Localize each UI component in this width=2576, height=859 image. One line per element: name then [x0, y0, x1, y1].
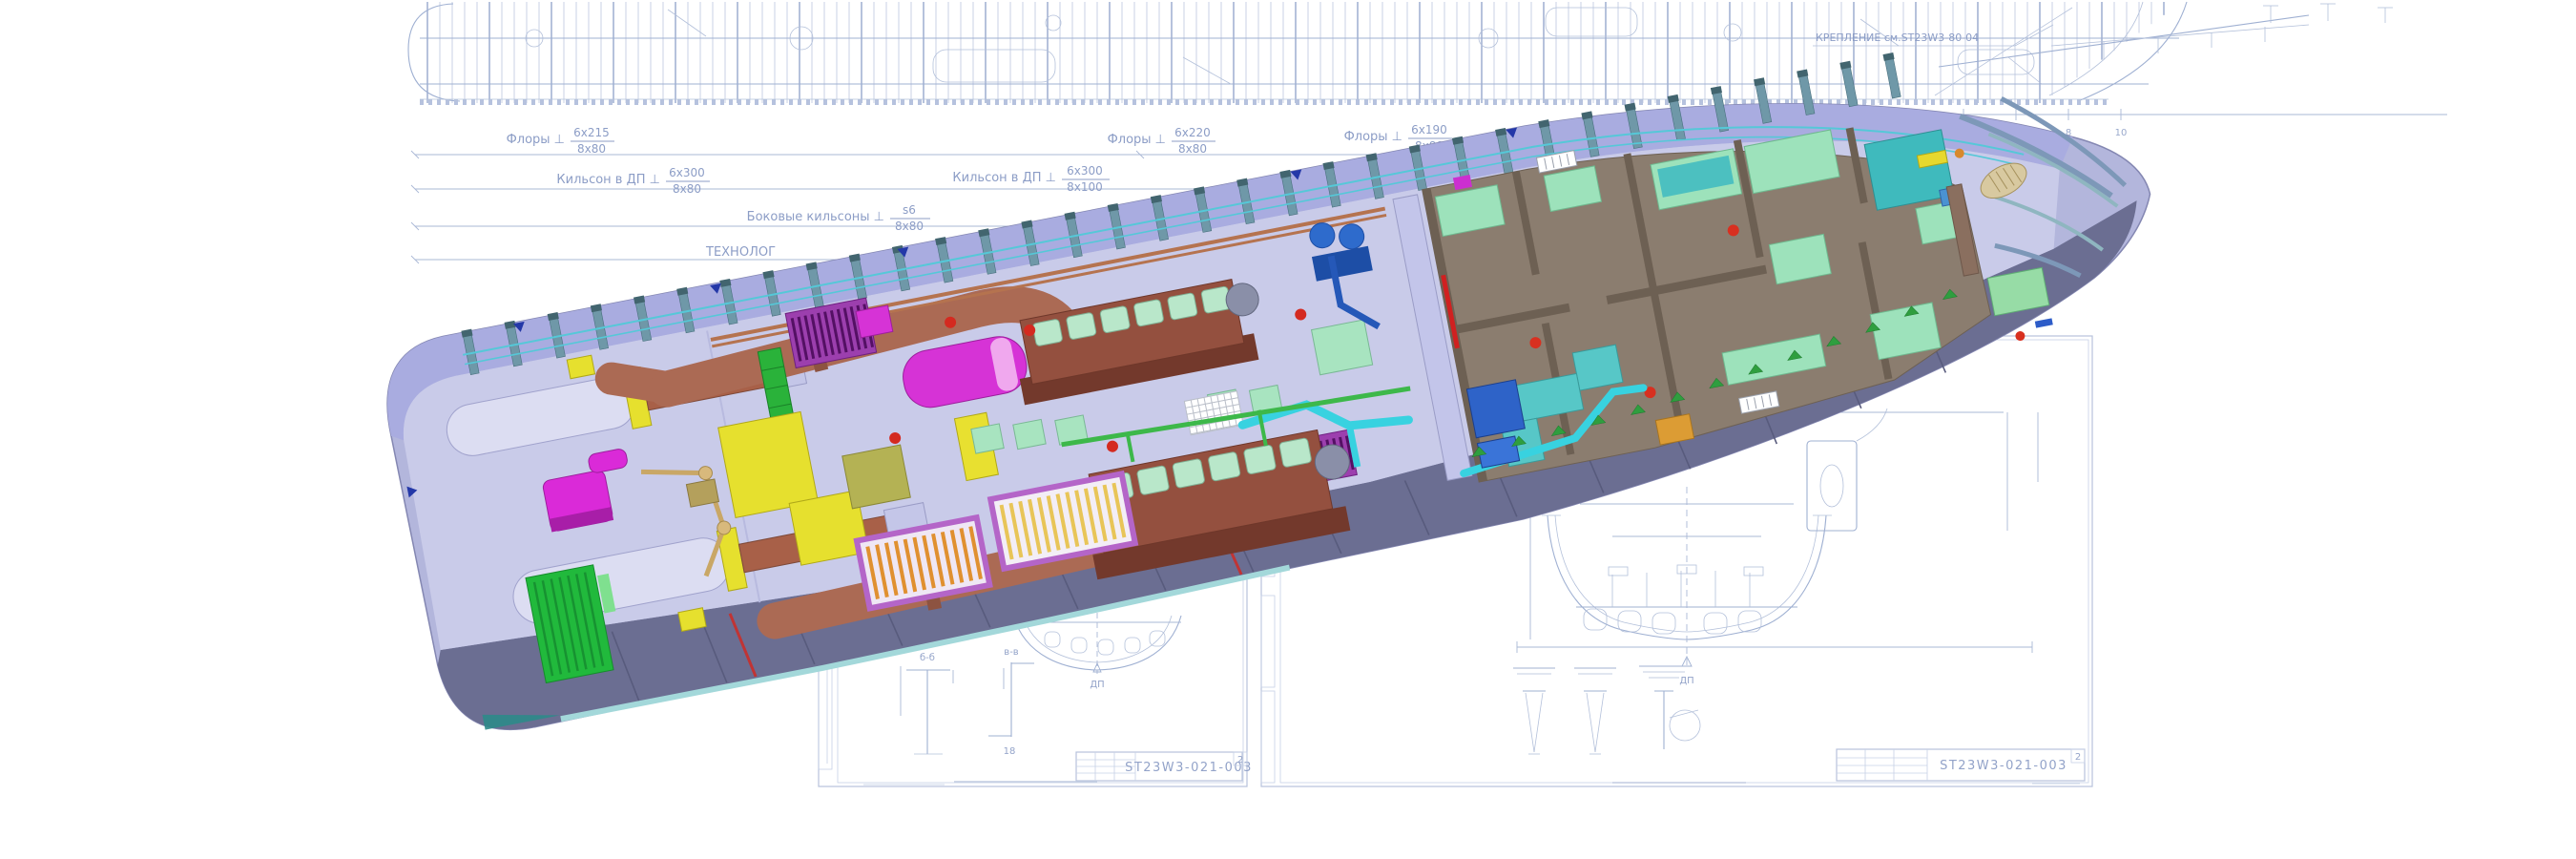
title-block-right: ST23W3-021-003 2 — [1612, 749, 2085, 784]
label-floors-1-lower: 8x80 — [577, 142, 606, 156]
beam-detail-b: в-в 18 — [988, 647, 1034, 757]
deck-plan-bow-curve — [2078, 2, 2187, 101]
label-keelson-1: Кильсон в ДП ⊥ 6x300 8x80 — [556, 166, 710, 196]
svg-text:б-б: б-б — [920, 653, 935, 663]
label-partial-technolog: ТЕХНОЛОГ — [705, 245, 776, 260]
svg-text:6x220: 6x220 — [1174, 126, 1211, 139]
svg-text:ДП: ДП — [1679, 676, 1693, 686]
svg-text:Боковые кильсоны ⊥: Боковые кильсоны ⊥ — [747, 210, 884, 224]
label-side-keelsons: Боковые кильсоны ⊥ s6 8x80 — [747, 203, 930, 233]
svg-text:Флоры ⊥: Флоры ⊥ — [1108, 133, 1166, 147]
scene: Флоры ⊥ 6x215 8x80 Флоры ⊥ 6x220 8x80 Фл… — [0, 0, 2576, 859]
fastening-note: КРЕПЛЕНИЕ см.ST23W3-80-04 — [1816, 31, 1979, 44]
doc-code-right: ST23W3-021-003 — [1940, 759, 2067, 773]
svg-text:2: 2 — [1237, 755, 1243, 765]
label-floors-2: Флоры ⊥ 6x220 8x80 — [1108, 126, 1215, 156]
tank-khaki — [842, 445, 911, 509]
svg-text:18: 18 — [1004, 746, 1016, 757]
svg-text:2: 2 — [2075, 752, 2081, 763]
svg-text:6x300: 6x300 — [669, 166, 705, 179]
ship-3d-model — [374, 10, 2191, 744]
title-block-middle: ST23W3-021-003 2 — [863, 752, 1253, 785]
svg-text:6x190: 6x190 — [1411, 123, 1447, 136]
label-floors-1-upper: 6x215 — [573, 126, 610, 139]
label-floors-1: Флоры ⊥ 6x215 8x80 — [507, 126, 614, 156]
svg-text:8x80: 8x80 — [895, 220, 924, 233]
svg-text:10: 10 — [2115, 128, 2128, 138]
svg-text:8x80: 8x80 — [673, 182, 701, 196]
blue-cabinet — [1466, 380, 1525, 438]
beam-detail-a: б-б — [901, 653, 953, 754]
svg-text:Флоры ⊥: Флоры ⊥ — [1344, 130, 1402, 144]
svg-text:6x300: 6x300 — [1067, 164, 1103, 178]
deck-plan-frame-lines — [427, 2, 2164, 103]
svg-text:ДП: ДП — [1090, 680, 1104, 690]
frame-details — [1513, 666, 1700, 754]
svg-text:в-в: в-в — [1004, 647, 1019, 658]
deck-plan-drawing — [408, 2, 2187, 103]
svg-text:8x80: 8x80 — [1178, 142, 1207, 156]
svg-text:8x100: 8x100 — [1067, 180, 1103, 194]
midship-section: ДП — [1517, 487, 2032, 686]
svg-text:s6: s6 — [903, 203, 916, 217]
svg-text:Кильсон в ДП ⊥: Кильсон в ДП ⊥ — [952, 171, 1056, 185]
ship-cad-screenshot: Флоры ⊥ 6x215 8x80 Флоры ⊥ 6x220 8x80 Фл… — [0, 0, 2576, 859]
svg-text:Кильсон в ДП ⊥: Кильсон в ДП ⊥ — [556, 173, 660, 187]
label-floors-1-name: Флоры ⊥ — [507, 133, 565, 147]
